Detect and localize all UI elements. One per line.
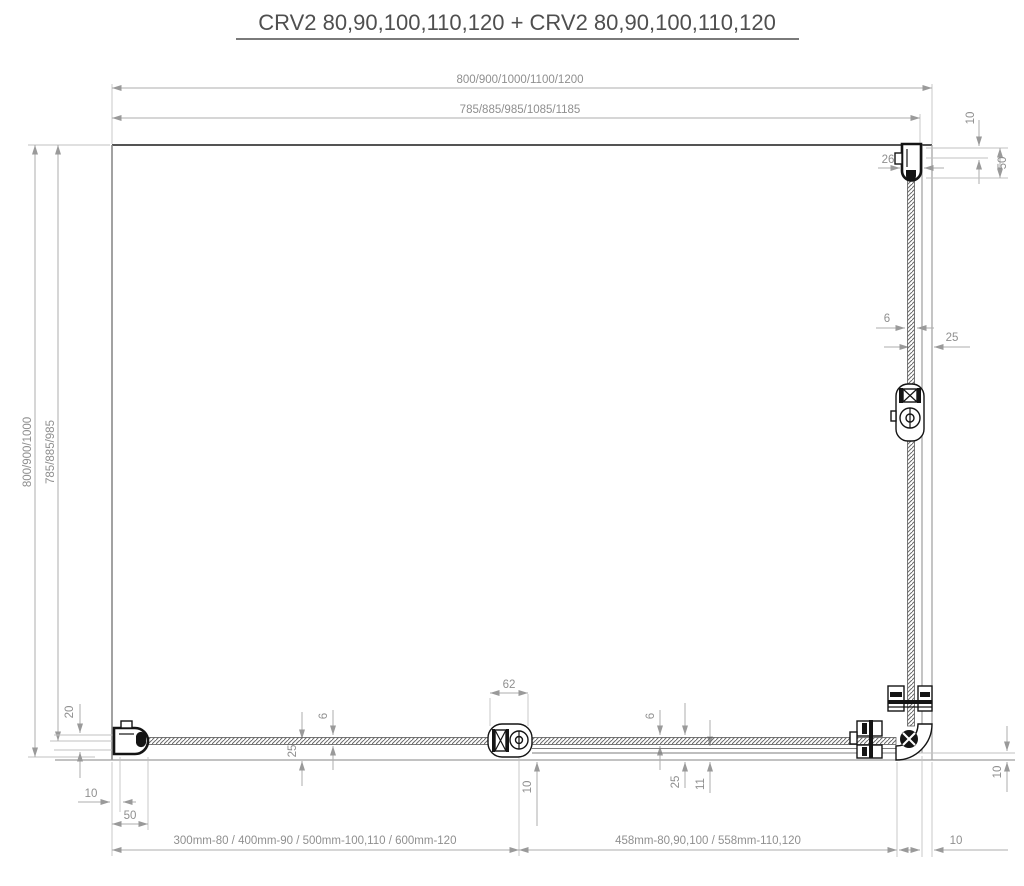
enclosure-outline bbox=[55, 145, 1015, 760]
dim-left-total-label: 800/900/1000 bbox=[22, 417, 34, 487]
dimension-bottom-right-glass-offset: 25 bbox=[670, 703, 685, 788]
dim-11-label: 11 bbox=[695, 778, 707, 790]
dimension-bottom-left-glass-offset: 25 bbox=[287, 712, 302, 786]
dim-26-label: 26 bbox=[882, 154, 895, 166]
dim-50-top-right-label: 50 bbox=[997, 157, 1009, 170]
dim-62-label: 62 bbox=[503, 679, 516, 691]
right-glass-panel bbox=[908, 176, 915, 726]
dim-top-total-label: 800/900/1000/1100/1200 bbox=[456, 74, 583, 86]
dim-10-left-label: 10 bbox=[85, 788, 98, 800]
dim-20-label: 20 bbox=[64, 706, 76, 719]
drawing-title: CRV2 80,90,100,110,120 + CRV2 80,90,100,… bbox=[236, 10, 799, 39]
dim-fixed-panel-label: 300mm-80 / 400mm-90 / 500mm-100,110 / 60… bbox=[174, 835, 457, 847]
dimension-left-total: 800/900/1000 bbox=[22, 145, 110, 757]
bottom-left-wall-profile bbox=[114, 721, 148, 754]
dimension-hinge-width: 62 bbox=[490, 679, 528, 726]
bottom-glass-hinge bbox=[488, 724, 532, 757]
dim-10-tray-label: 10 bbox=[992, 766, 1004, 779]
page-title: CRV2 80,90,100,110,120 + CRV2 80,90,100,… bbox=[258, 10, 776, 35]
dim-10-corner-label: 10 bbox=[950, 835, 963, 847]
dimension-top-right-offset: 10 bbox=[926, 112, 1008, 184]
dim-10-top-right-label: 10 bbox=[965, 112, 977, 125]
dimension-left-wall-glass-gap: 10 bbox=[78, 757, 136, 856]
glass-panels bbox=[146, 176, 915, 753]
dim-25-right-label: 25 bbox=[946, 332, 959, 344]
dimension-door-profile-offset: 11 bbox=[695, 720, 710, 793]
dimension-right-glass-offset: 25 bbox=[884, 332, 970, 347]
dimension-top-glass: 785/885/985/1085/1185 bbox=[112, 104, 920, 144]
dim-door-panel-label: 458mm-80,90,100 / 558mm-110,120 bbox=[615, 835, 801, 847]
right-glass-hinge bbox=[891, 384, 924, 441]
dimension-left-glass: 785/885/985 bbox=[45, 145, 112, 741]
dimension-right-glass-thickness: 6 bbox=[876, 313, 934, 328]
crv2-technical-drawing-page: CRV2 80,90,100,110,120 + CRV2 80,90,100,… bbox=[0, 0, 1024, 886]
top-right-wall-profile bbox=[895, 144, 921, 181]
dim-25-bottom-left-label: 25 bbox=[287, 745, 299, 758]
dim-10-hinge-label: 10 bbox=[522, 781, 534, 794]
dimension-top-right-profile-height: 50 bbox=[926, 148, 1009, 178]
dim-25-bottom-right-label: 25 bbox=[670, 776, 682, 789]
dim-left-glass-label: 785/885/985 bbox=[45, 420, 57, 484]
dimension-fixed-panel-width: 300mm-80 / 400mm-90 / 500mm-100,110 / 60… bbox=[112, 835, 519, 850]
dim-6-bottom-left-label: 6 bbox=[318, 713, 330, 719]
dim-top-glass-label: 785/885/985/1085/1185 bbox=[460, 104, 581, 116]
corner-connector bbox=[896, 724, 932, 760]
dimension-door-panel-width: 458mm-80,90,100 / 558mm-110,120 bbox=[519, 835, 897, 850]
dim-6-bottom-right-label: 6 bbox=[645, 713, 657, 719]
dimension-hinge-floor-gap: 10 bbox=[519, 757, 537, 856]
dim-50-left-label: 50 bbox=[124, 810, 137, 822]
crv2-plan-drawing: CRV2 80,90,100,110,120 + CRV2 80,90,100,… bbox=[0, 0, 1024, 886]
dimension-left-profile-length: 50 bbox=[112, 757, 148, 830]
dim-6-right-label: 6 bbox=[884, 313, 890, 325]
